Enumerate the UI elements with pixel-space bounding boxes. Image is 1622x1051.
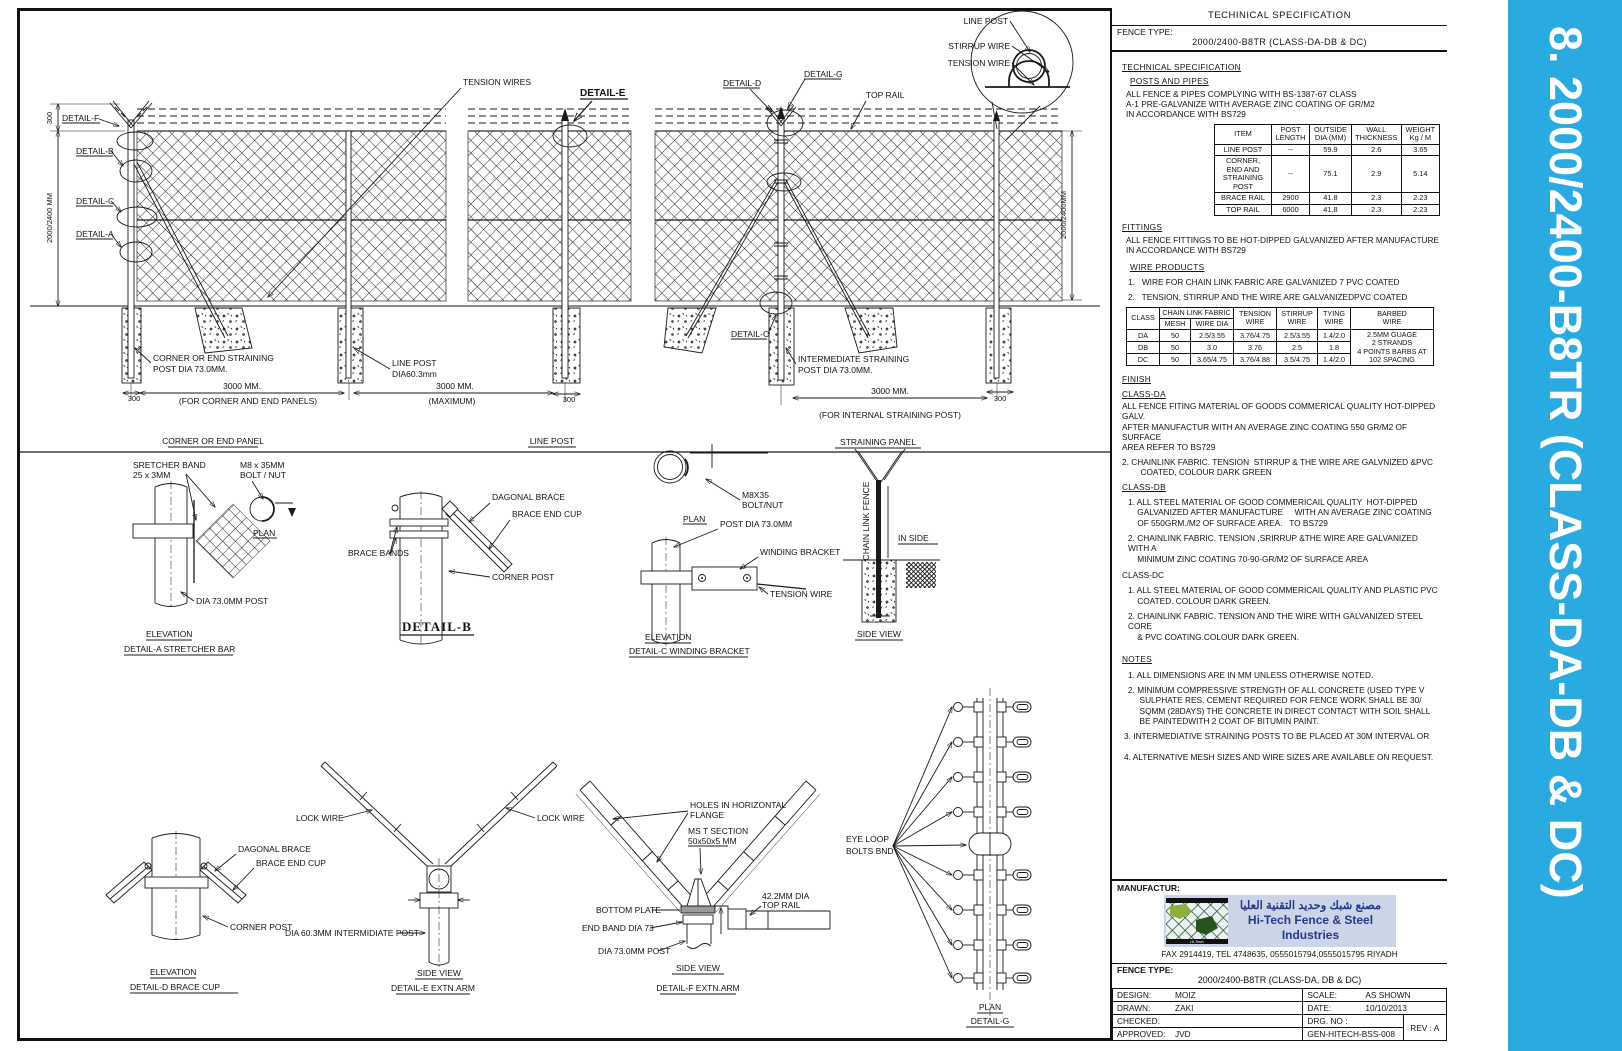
class-dc-item2: 2. CHAINLINK FABRIC. TENSION AND THE WIR… (1128, 611, 1440, 642)
corner-post-label-d: CORNER POST (230, 922, 292, 932)
posts-cell: BRACE RAIL (1215, 193, 1272, 205)
class-db-heading: CLASS-DB (1122, 482, 1440, 492)
wire-th-stirrup: STIRRUP WIRE (1277, 307, 1318, 330)
stretcher-band-label-2: 25 x 3MM (133, 470, 170, 480)
wire-cell: 50 (1160, 342, 1191, 354)
table-row: APPROVED:JVD GEN-HITECH-BSS-008 (1113, 1028, 1447, 1041)
manufacturer-section: MANUFACTUR: Hi-Te (1112, 881, 1447, 963)
barbed-wire-cell: 2.5MM GUAGE 2 STRANDS 4 POINTS BARBS AT … (1351, 330, 1434, 366)
date-label: DATE: (1307, 1003, 1365, 1013)
class-dc-heading: CLASS-DC (1122, 570, 1440, 580)
caption-internal: (FOR INTERNAL STRAINING POST) (819, 410, 961, 420)
fittings-heading: FITTINGS (1122, 222, 1440, 232)
wire-cell: 3.76/4.88 (1234, 354, 1277, 366)
bolt-nut-label: BOLT/NUT (742, 500, 783, 510)
brace-bands-label: BRACE BANDS (348, 548, 409, 558)
class-db-item1: 1. ALL STEEL MATERIAL OF GOOD COMMERICAI… (1128, 497, 1440, 528)
drg-label: DRG. NO : (1307, 1016, 1347, 1026)
class-dc-item1: 1. ALL STEEL MATERIAL OF GOOD COMMERICAI… (1128, 585, 1440, 606)
dia603-intermidiate-label: DIA 60.3MM INTERMIDIATE POST (285, 928, 419, 938)
wire-cell: 3.65/4.75 (1191, 354, 1234, 366)
chain-link-fence-label: CHAIN LINK FENCE (861, 481, 871, 560)
table-row: DESIGN:MOIZ SCALE:AS SHOWN (1113, 989, 1447, 1002)
posts-cell: 41.8 (1310, 204, 1352, 216)
elevation-label-c: ELEVATION (645, 632, 691, 642)
top-rail-label: TOP RAIL (866, 90, 905, 100)
m8x35-label: M8X35 (742, 490, 769, 500)
posts-pipes-table: ITEM POST LENGTH OUTSIDE DIA (MM) WALL T… (1214, 124, 1440, 217)
dagonal-brace-label-b: DAGONAL BRACE (492, 492, 565, 502)
logo-english: Hi-Tech Fence & Steel Industries (1228, 913, 1394, 943)
tension-wire-label-c: TENSION WIRE (770, 589, 833, 599)
detail-e-drawing: LOCK WIRE LOCK WIRE DIA 60.3MM INTERMIDI… (285, 762, 585, 994)
note-3: 3. INTERMEDIATIVE STRAINING POSTS TO BE … (1124, 731, 1440, 741)
m8-bolt-label-1: M8 x 35MM (240, 460, 284, 470)
posts-pipes-heading: POSTS AND PIPES (1130, 76, 1440, 86)
corner-straining-label-1: CORNER OR END STRAINING (153, 353, 274, 363)
holes-flange-label-1: HOLES IN HORIZONTAL (690, 800, 786, 810)
dim-3000-straining: 3000 MM. (871, 386, 909, 396)
posts-cell: 75.1 (1310, 156, 1352, 193)
line-post-top-detail-circle (971, 11, 1073, 140)
corner-straining-label-2: POST DIA 73.0MM. (153, 364, 227, 374)
fence-type-label: FENCE TYPE: (1117, 27, 1442, 37)
winding-bracket-label: WINDING BRACKET (760, 547, 840, 557)
m8-bolt-label-2: BOLT / NUT (240, 470, 286, 480)
side-view-label-fence: SIDE VIEW (857, 629, 901, 639)
dim-height-right: 2000/2400MM (1059, 191, 1068, 239)
wire-item-2: 2. TENSION, STIRRUP AND THE WIRE ARE GAL… (1128, 292, 1440, 302)
wire-cell: 1.4/2.0 (1318, 354, 1351, 366)
fence-type-value: 2000/2400-B8TR (CLASS-DA-DB & DC) (1117, 37, 1442, 47)
posts-th-wall: WALL THICKNESS (1351, 124, 1401, 144)
table-row: CORNER, END AND STRAINING POST -- 75.1 2… (1215, 156, 1440, 193)
fence-type-top: FENCE TYPE: 2000/2400-B8TR (CLASS-DA-DB … (1112, 26, 1447, 52)
fence-drawings: DETAIL-F DETAIL-B DETAIL-C DETAIL-A 300 … (17, 8, 1110, 1041)
contact-line: FAX 2914419, TEL 4748635, 0555015794,055… (1117, 949, 1442, 961)
drawn-value: ZAKI (1175, 1003, 1193, 1013)
posts-cell: 59.9 (1310, 144, 1352, 156)
detail-f-ref: DETAIL-F (62, 113, 99, 123)
wire-th-mesh: MESH (1160, 318, 1191, 329)
intermediate-label-1: INTERMEDIATE STRAINING (798, 354, 909, 364)
wire-cell: 2.5/3.55 (1191, 330, 1234, 342)
wire-cell: 1.4/2.0 (1318, 330, 1351, 342)
plan-label-c: PLAN (683, 514, 705, 524)
title-corner-end-panel: CORNER OR END PANEL (162, 436, 264, 446)
wire-th-tension: TENSION WIRE (1234, 307, 1277, 330)
wire-cell: 50 (1160, 354, 1191, 366)
fence-type-bottom: FENCE TYPE: 2000/2400-B8TR (CLASS-DA, DB… (1112, 963, 1447, 988)
approved-value: JVD (1175, 1029, 1191, 1039)
class-da-heading: CLASS-DA (1122, 389, 1440, 399)
dim-300-corner: 300 (128, 394, 141, 403)
drawing-sheet: DETAIL-F DETAIL-B DETAIL-C DETAIL-A 300 … (0, 0, 1622, 1051)
eye-loop-label-2: BOLTS BND (846, 846, 894, 856)
lock-wire-label-right: LOCK WIRE (537, 813, 585, 823)
detail-c-ref-2: DETAIL-C (731, 329, 769, 339)
detail-c-title: DETAIL-C WINDING BRACKET (629, 646, 750, 656)
posts-cell: -- (1272, 144, 1310, 156)
approved-label: APPROVED: (1117, 1029, 1175, 1039)
detail-a-ref: DETAIL-A (76, 229, 114, 239)
wire-th-tying: TYING WIRE (1318, 307, 1351, 330)
wire-th-wiredia: WIRE DIA (1191, 318, 1234, 329)
table-row: TOP RAIL 6000 41.8 2.3 2.23 (1215, 204, 1440, 216)
wire-cell: 2.5/3.55 (1277, 330, 1318, 342)
section-tab-title: 8. 2000/2400-B8TR (CLASS-DA-DB & DC) (1508, 0, 1622, 1051)
wire-cell: 3.0 (1191, 342, 1234, 354)
wire-cell: 3.5/4.75 (1277, 354, 1318, 366)
detail-g-ref: DETAIL-G (804, 69, 843, 79)
scale-label: SCALE: (1307, 990, 1365, 1000)
class-db-item2: 2. CHAINLINK FABRIC. TENSION ,SRIRRUP &T… (1128, 533, 1440, 564)
table-row: CHECKED: DRG. NO : REV : A (1113, 1015, 1447, 1028)
notes-heading: NOTES (1122, 654, 1440, 664)
chainlink-logo-icon: Hi-Tech (1166, 898, 1228, 944)
wire-cell: DC (1127, 354, 1160, 366)
detail-c-drawing: M8X35 BOLT/NUT PLAN POST DIA 73.0MM WIND… (629, 444, 840, 657)
elevation-drawings: DETAIL-F DETAIL-B DETAIL-C DETAIL-A 300 … (30, 11, 1100, 448)
bottom-plate-label: BOTTOM PLATE (596, 905, 661, 915)
dia73-post-label-f: DIA 73.0MM POST (598, 946, 670, 956)
design-label: DESIGN: (1117, 990, 1175, 1000)
wire-cell: 1.8 (1318, 342, 1351, 354)
elevation-label-d: ELEVATION (150, 967, 196, 977)
dia73-post-label: DIA 73.0MM POST (196, 596, 268, 606)
plan-label-g: PLAN (979, 1002, 1001, 1012)
posts-th-item: ITEM (1215, 124, 1272, 144)
corner-post-label-b: CORNER POST (492, 572, 554, 582)
detail-g-drawing: EYE LOOP BOLTS BND PLAN DETAIL-G (846, 688, 1031, 1027)
posts-cell: LINE POST (1215, 144, 1272, 156)
lock-wire-label-left: LOCK WIRE (296, 813, 344, 823)
class-da-item2: 2. CHAINLINK FABRIC. TENSION STIRRUP & T… (1122, 457, 1440, 478)
section-tab: 8. 2000/2400-B8TR (CLASS-DA-DB & DC) (1508, 0, 1622, 1051)
dim-300-straining: 300 (994, 394, 1007, 403)
logo-arabic: مصنع شبك وحديد التقنية العليا (1228, 899, 1394, 913)
posts-cell: 41.8 (1310, 193, 1352, 205)
detail-a-drawing: SRETCHER BAND 25 x 3MM M8 x 35MM BOLT / … (124, 460, 296, 655)
wire-item-1: 1. WIRE FOR CHAIN LINK FABRIC ARE GALVAN… (1128, 277, 1440, 287)
detail-f-drawing: HOLES IN HORIZONTAL FLANGE MS T SECTION … (576, 781, 830, 994)
fence-type-label-bottom: FENCE TYPE: (1117, 965, 1442, 975)
detail-e-title: DETAIL-E EXTN.ARM (391, 983, 475, 993)
title-line-post: LINE POST (530, 436, 574, 446)
drg-value: GEN-HITECH-BSS-008 (1307, 1029, 1395, 1039)
drawn-label: DRAWN: (1117, 1003, 1175, 1013)
detail-a-title: DETAIL-A STRETCHER BAR (124, 644, 235, 654)
posts-cell: 2.23 (1401, 204, 1439, 216)
wire-cell: 2.5 (1277, 342, 1318, 354)
side-view-label-e: SIDE VIEW (417, 968, 461, 978)
note-1: 1. ALL DIMENSIONS ARE IN MM UNLESS OTHER… (1128, 670, 1440, 680)
posts-pipes-text: ALL FENCE & PIPES COMPLYING WITH BS-1387… (1126, 89, 1440, 120)
detail-d-title: DETAIL-D BRACE CUP (130, 982, 220, 992)
posts-cell: CORNER, END AND STRAINING POST (1215, 156, 1272, 193)
posts-cell: 5.14 (1401, 156, 1439, 193)
wire-cell: 3.76/4.75 (1234, 330, 1277, 342)
table-row: BRACE RAIL 2900 41.8 2.3 2.23 (1215, 193, 1440, 205)
posts-cell: 6000 (1272, 204, 1310, 216)
detail-g-title: DETAIL-G (971, 1016, 1010, 1026)
stirrup-wire-callout: STIRRUP WIRE (948, 41, 1010, 51)
wire-table: CLASS CHAIN LINK FABRIC TENSION WIRE STI… (1126, 307, 1434, 367)
tension-wires-label: TENSION WIRES (463, 77, 531, 87)
posts-cell: 2.3 (1351, 193, 1401, 205)
posts-cell: 2.23 (1401, 193, 1439, 205)
title-straining-panel: STRAINING PANEL (840, 437, 916, 447)
tension-wire-callout: TENSION WIRE (948, 58, 1011, 68)
detail-e-ref: DETAIL-E (580, 88, 626, 99)
detail-f-title: DETAIL-F EXTN.ARM (656, 983, 739, 993)
rev-cell: REV : A (1403, 1015, 1446, 1041)
posts-th-dia: OUTSIDE DIA (MM) (1310, 124, 1352, 144)
brace-end-cup-label-b: BRACE END CUP (512, 509, 582, 519)
fittings-text: ALL FENCE FITTINGS TO BE HOT-DIPPED GALV… (1126, 235, 1440, 256)
sec-heading: TECHNICAL SPECIFICATION (1122, 62, 1440, 72)
wire-products-heading: WIRE PRODUCTS (1130, 262, 1440, 272)
posts-cell: TOP RAIL (1215, 204, 1272, 216)
note-2: 2. MINIMUM COMPRESSIVE STRENGTH OF ALL C… (1128, 685, 1440, 726)
plan-label-a: PLAN (253, 528, 275, 538)
logo-text: مصنع شبك وحديد التقنية العليا Hi-Tech Fe… (1228, 899, 1394, 943)
date-value: 10/10/2013 (1365, 1003, 1407, 1013)
holes-flange-label-2: FLANGE (690, 810, 724, 820)
intermediate-label-2: POST DIA 73.0MM. (798, 365, 872, 375)
company-logo: Hi-Tech مصنع شبك وحديد التقنية العليا Hi… (1164, 895, 1396, 947)
posts-cell: 2.3 (1351, 204, 1401, 216)
wire-cell: DA (1127, 330, 1160, 342)
posts-th-weight: WEIGHT Kg / M (1401, 124, 1439, 144)
in-side-label: IN SIDE (898, 533, 929, 543)
note-4: 4. ALTERNATIVE MESH SIZES AND WIRE SIZES… (1124, 752, 1440, 762)
posts-cell: 2.6 (1351, 144, 1401, 156)
caption-corner-panels: (FOR CORNER AND END PANELS) (179, 396, 317, 406)
posts-cell: -- (1272, 156, 1310, 193)
elevation-label-a: ELEVATION (146, 629, 192, 639)
technical-spec-panel: TECHINICAL SPECIFICATION FENCE TYPE: 200… (1110, 8, 1447, 1041)
detail-c-ref: DETAIL-C (76, 196, 114, 206)
dim-300-left: 300 (45, 112, 54, 125)
eye-loop-label-1: EYE LOOP (846, 834, 889, 844)
wire-cell: DB (1127, 342, 1160, 354)
ms-t-section-label-2: 50x50x5 MM (688, 836, 737, 846)
manufacturer-label: MANUFACTUR: (1117, 883, 1442, 893)
line-post-callout: LINE POST (964, 16, 1008, 26)
posts-cell: 2.9 (1351, 156, 1401, 193)
dim-height-left: 2000/2400 MM (45, 193, 54, 243)
approval-grid: DESIGN:MOIZ SCALE:AS SHOWN DRAWN:ZAKI DA… (1112, 988, 1447, 1041)
class-da-text: ALL FENCE FITING MATERIAL OF GOODS COMME… (1122, 401, 1440, 453)
detail-b-drawing: DAGONAL BRACE BRACE END CUP BRACE BANDS … (348, 491, 582, 646)
wire-cell: 3.76 (1234, 342, 1277, 354)
title-block: MANUFACTUR: Hi-Te (1112, 879, 1447, 1041)
design-value: MOIZ (1175, 990, 1196, 1000)
table-row: DA 50 2.5/3.55 3.76/4.75 2.5/3.55 1.4/2.… (1127, 330, 1434, 342)
brace-end-cup-label-d: BRACE END CUP (256, 858, 326, 868)
panel-body: TECHNICAL SPECIFICATION POSTS AND PIPES … (1112, 52, 1447, 762)
fence-side-view-drawing: CHAIN LINK FENCE IN SIDE SIDE VIEW (843, 449, 940, 640)
detail-d-ref: DETAIL-D (723, 78, 761, 88)
posts-th-length: POST LENGTH (1272, 124, 1310, 144)
end-band-label: END BAND DIA 73 (582, 923, 654, 933)
ms-t-section-label-1: MS T SECTION (688, 826, 748, 836)
stretcher-band-label-1: SRETCHER BAND (133, 460, 206, 470)
scale-value: AS SHOWN (1365, 990, 1410, 1000)
line-post-dia-label-2: DIA60.3mm (392, 369, 437, 379)
posts-cell: 2900 (1272, 193, 1310, 205)
detail-d-drawing: DAGONAL BRACE BRACE END CUP CORNER POST … (106, 831, 326, 993)
dim-3000-max: 3000 MM. (436, 381, 474, 391)
dim-300-linepost: 300 (563, 395, 576, 404)
top-rail-label-f: TOP RAIL (762, 900, 801, 910)
wire-th-barbed: BARBED WIRE (1351, 307, 1434, 330)
side-view-label-f: SIDE VIEW (676, 963, 720, 973)
wire-cell: 50 (1160, 330, 1191, 342)
panel-header: TECHINICAL SPECIFICATION (1112, 8, 1447, 26)
fence-type-value-bottom: 2000/2400-B8TR (CLASS-DA, DB & DC) (1117, 975, 1442, 985)
checked-label: CHECKED: (1117, 1016, 1175, 1026)
dim-3000-corner: 3000 MM. (223, 381, 261, 391)
logo-strip-text: Hi-Tech (1190, 939, 1204, 944)
posts-cell: 3.65 (1401, 144, 1439, 156)
caption-maximum: (MAXIMUM) (429, 396, 476, 406)
detail-b-title: DETAIL-B (402, 619, 472, 634)
dagonal-brace-label-d: DAGONAL BRACE (238, 844, 311, 854)
line-post-dia-label-1: LINE POST (392, 358, 436, 368)
wire-th-chainlink: CHAIN LINK FABRIC (1160, 307, 1234, 318)
table-row: LINE POST -- 59.9 2.6 3.65 (1215, 144, 1440, 156)
wire-th-class: CLASS (1127, 307, 1160, 330)
post-dia73-label: POST DIA 73.0MM (720, 519, 792, 529)
finish-heading: FINISH (1122, 374, 1440, 384)
table-row: DRAWN:ZAKI DATE:10/10/2013 (1113, 1002, 1447, 1015)
detail-b-ref: DETAIL-B (76, 146, 114, 156)
